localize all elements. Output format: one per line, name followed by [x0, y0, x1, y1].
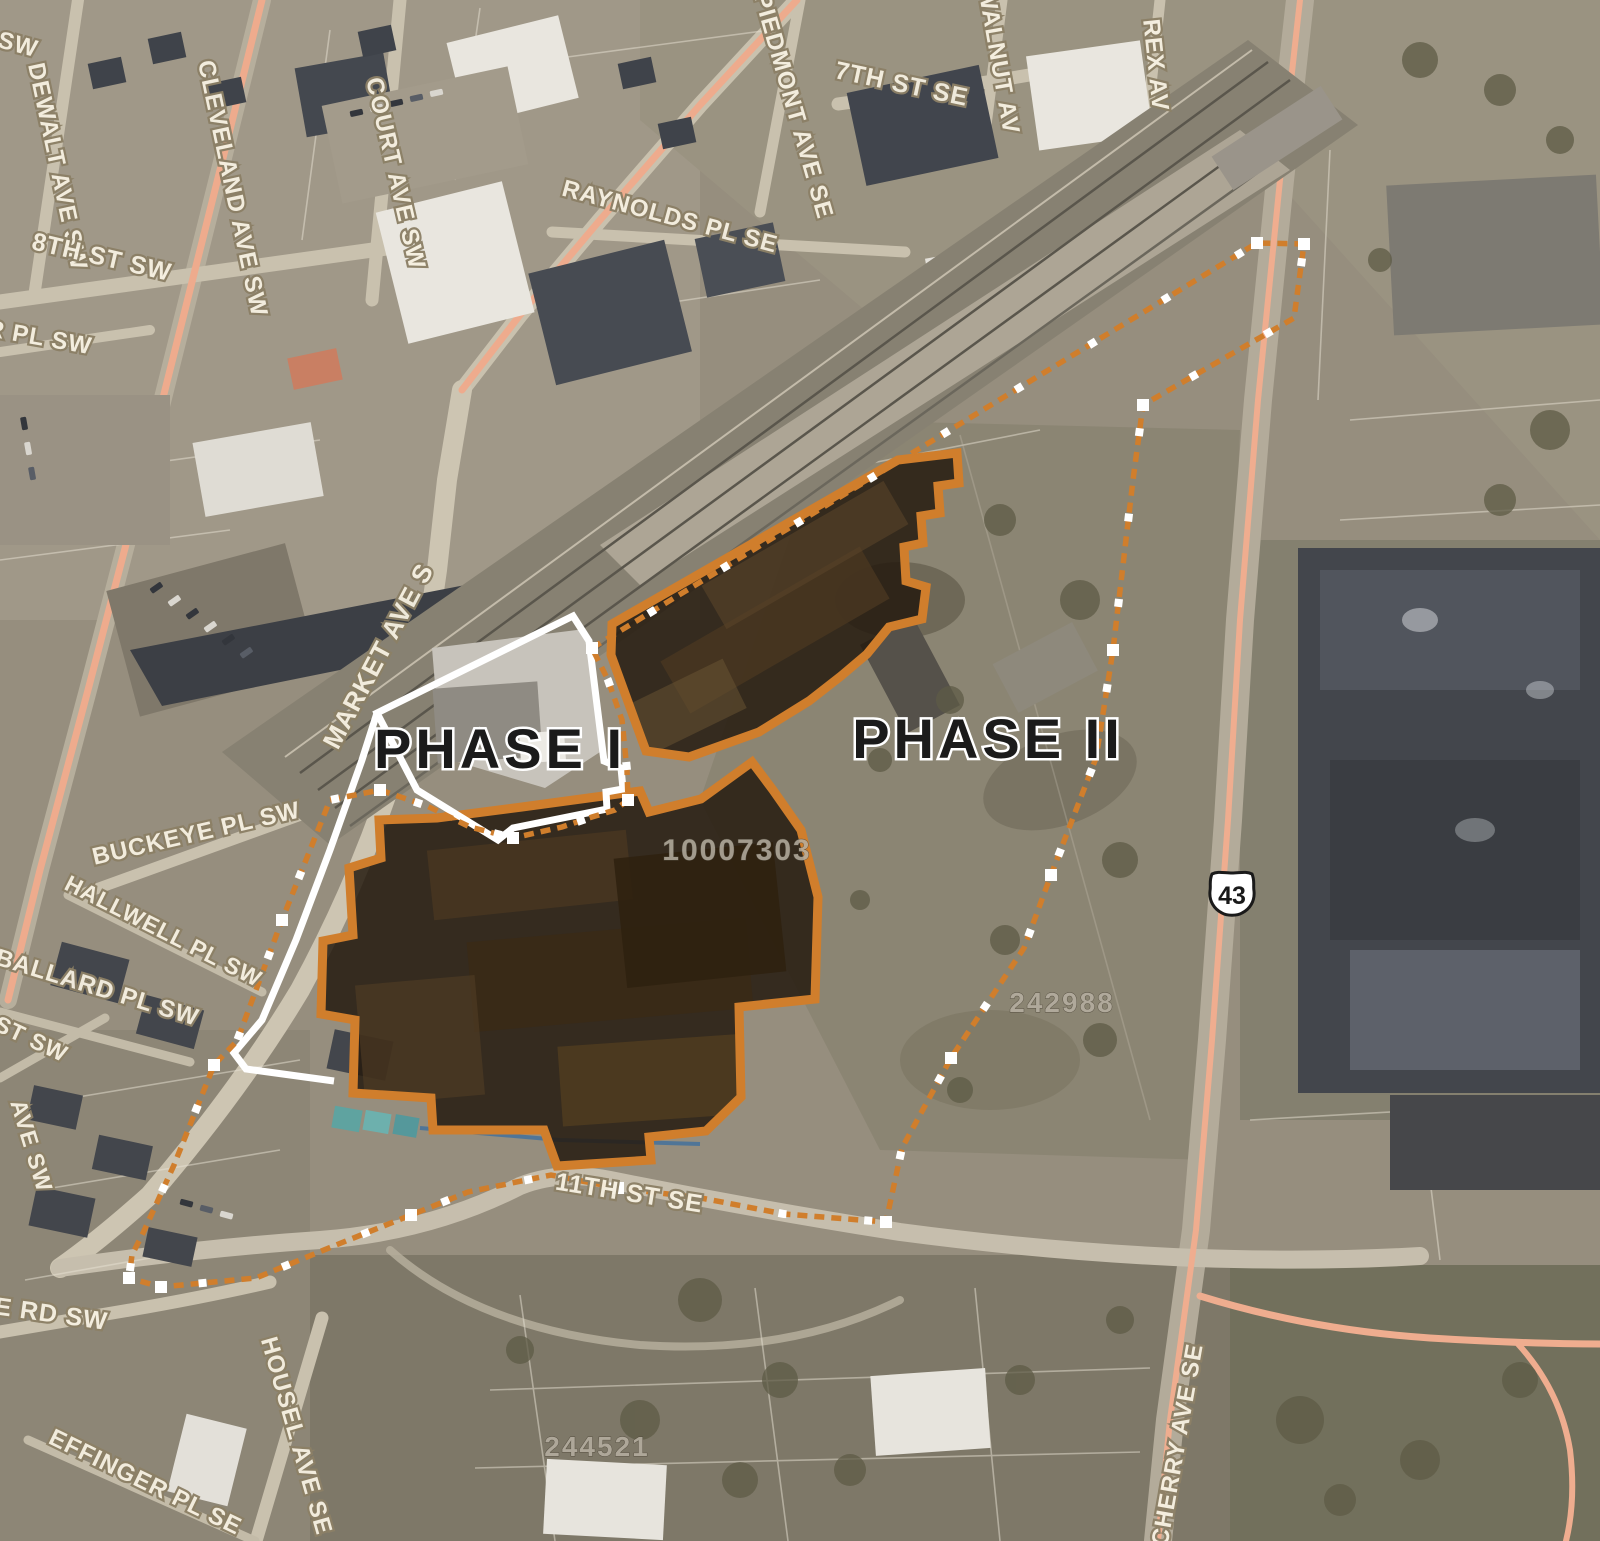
aerial-map-canvas: SWDEWALT AVE SW8TH ST SWCLEVELAND AVE SW… [0, 0, 1600, 1541]
aerial-map[interactable]: SWDEWALT AVE SW8TH ST SWCLEVELAND AVE SW… [0, 0, 1600, 1541]
parcel-number-10007303: 10007303 [662, 834, 811, 867]
phase2-label: PHASE II [852, 707, 1124, 770]
parcel-number-242988: 242988 [1009, 987, 1114, 1018]
route-43-shield: 43 [1210, 872, 1254, 915]
route-number: 43 [1218, 882, 1246, 910]
parcel-number-244521: 244521 [544, 1431, 649, 1462]
phase1-label: PHASE I [374, 717, 626, 780]
